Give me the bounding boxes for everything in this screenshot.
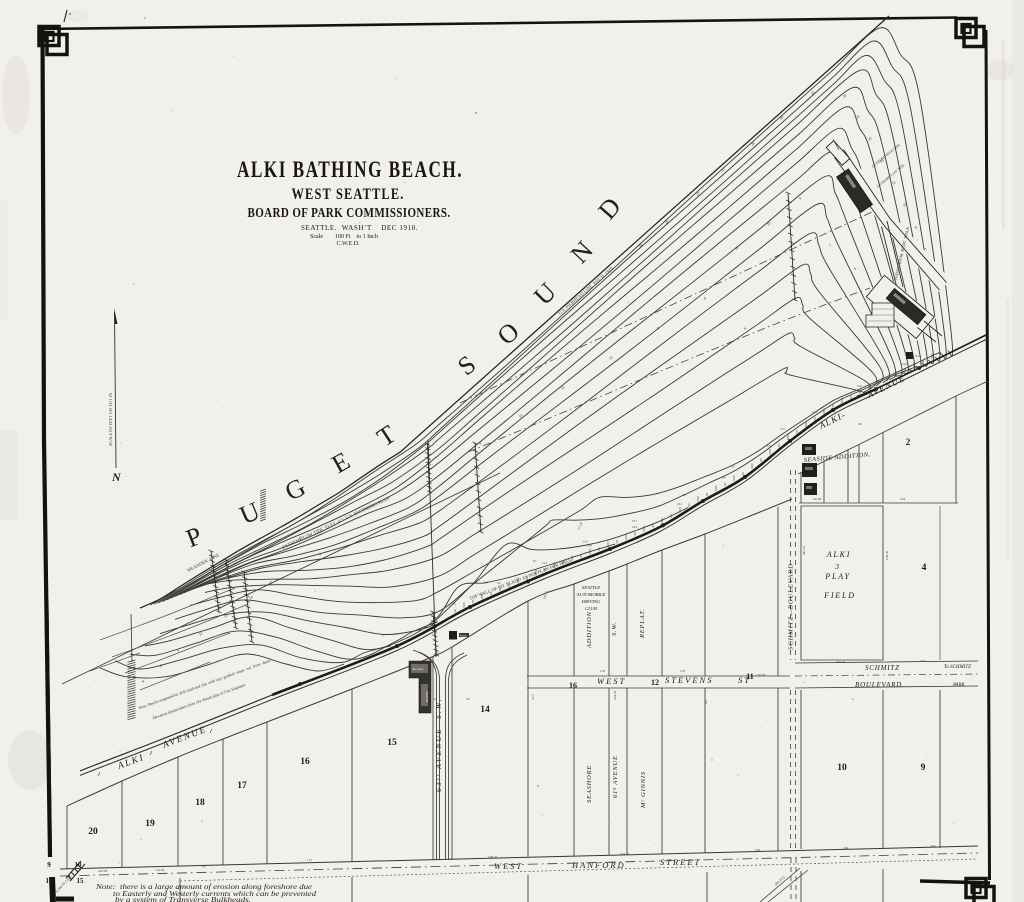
svg-text:BOULEVARD.: BOULEVARD.: [855, 681, 905, 689]
svg-text:324.35: 324.35: [620, 852, 630, 856]
svg-text:17: 17: [237, 781, 247, 791]
svg-text:S.W.: S.W.: [611, 621, 618, 636]
svg-text:4.0: 4.0: [452, 602, 456, 606]
svg-text:18.7: 18.7: [632, 519, 638, 523]
svg-text:9.6: 9.6: [767, 444, 771, 448]
svg-text:324.35: 324.35: [613, 690, 617, 700]
svg-text:ADDITION: ADDITION: [586, 611, 593, 649]
svg-text:57.5: 57.5: [531, 694, 535, 700]
svg-text:15: 15: [387, 738, 397, 748]
svg-text:222.64: 222.64: [98, 869, 108, 873]
svg-text:ALKI: ALKI: [826, 550, 852, 559]
svg-text:30: 30: [433, 697, 437, 701]
svg-text:Store: Store: [915, 354, 922, 358]
svg-text:24.6: 24.6: [902, 362, 908, 366]
svg-text:150.06: 150.06: [756, 673, 766, 677]
svg-text:19.0: 19.0: [587, 544, 593, 548]
svg-text:Pump: Pump: [460, 633, 468, 637]
svg-text:CM.41: CM.41: [885, 550, 889, 560]
svg-text:REPLAT.: REPLAT.: [639, 608, 646, 639]
svg-text:To SCHMITZ: To SCHMITZ: [944, 665, 971, 670]
svg-text:57: 57: [202, 865, 206, 869]
svg-text:14.3: 14.3: [542, 561, 548, 565]
svg-text:29.3: 29.3: [677, 502, 683, 506]
svg-text:63ʳᵗ AVENUE S.W.: 63ʳᵗ AVENUE S.W.: [434, 697, 443, 792]
svg-text:16: 16: [300, 757, 310, 767]
svg-text:8.1: 8.1: [533, 559, 537, 563]
svg-text:14.3: 14.3: [812, 410, 818, 414]
svg-text:13.1: 13.1: [682, 493, 688, 497]
svg-text:SCHMITZ: SCHMITZ: [865, 664, 900, 672]
svg-text:WEST: WEST: [494, 861, 523, 871]
svg-text:254: 254: [900, 497, 905, 501]
svg-text:Mᶜ GINNIS: Mᶜ GINNIS: [640, 771, 647, 809]
svg-text:24.6: 24.6: [632, 525, 638, 529]
svg-text:23.7: 23.7: [781, 427, 787, 431]
svg-text:ALKI BATHING BEACH.: ALKI BATHING BEACH.: [237, 157, 463, 183]
svg-text:CLUB: CLUB: [585, 606, 597, 611]
svg-text:23.4: 23.4: [583, 539, 589, 543]
svg-text:HANFORD: HANFORD: [571, 860, 626, 870]
svg-text:BOARD OF PARK COMMISSIONERS.: BOARD OF PARK COMMISSIONERS.: [248, 206, 451, 221]
svg-text:DRIVING: DRIVING: [581, 599, 601, 604]
svg-text:SEASHORE: SEASHORE: [586, 765, 593, 803]
svg-text:150.06: 150.06: [812, 497, 822, 501]
svg-text:9.6: 9.6: [497, 581, 501, 585]
svg-text:AUTOMOBILE: AUTOMOBILE: [576, 592, 606, 597]
svg-text:SEATTLE. WASH’T DEC 1910.: SEATTLE. WASH’T DEC 1910.: [301, 224, 418, 232]
svg-text:STREET: STREET: [660, 857, 701, 867]
svg-text:169.35: 169.35: [488, 855, 498, 859]
svg-text:ST: ST: [738, 675, 751, 685]
svg-text:171: 171: [307, 858, 312, 862]
svg-text:WEST: WEST: [597, 676, 626, 686]
svg-text:10: 10: [75, 861, 83, 869]
svg-text:254: 254: [930, 844, 935, 848]
svg-text:264: 264: [843, 846, 848, 850]
svg-text:150: 150: [600, 669, 605, 673]
svg-text:441.41: 441.41: [802, 545, 806, 555]
svg-text:15: 15: [77, 877, 85, 885]
svg-text:264.95: 264.95: [836, 660, 846, 664]
svg-text:WEST SEATTLE.: WEST SEATTLE.: [292, 186, 405, 203]
svg-text:12: 12: [651, 678, 659, 687]
svg-text:61ⁿ AVENUE: 61ⁿ AVENUE: [612, 755, 619, 798]
svg-text:40: 40: [858, 422, 862, 426]
svg-text:10: 10: [837, 763, 847, 773]
svg-text:McCabe: McCabe: [413, 667, 424, 671]
svg-text:PLAY: PLAY: [824, 572, 850, 581]
svg-text:14: 14: [480, 705, 490, 715]
svg-text:19.0: 19.0: [857, 384, 863, 388]
svg-text:333: 333: [755, 848, 760, 852]
svg-text:8.4: 8.4: [731, 464, 735, 468]
svg-text:FIELD: FIELD: [823, 591, 856, 600]
svg-text:C.W.E.D.: C.W.E.D.: [336, 241, 360, 247]
svg-text:18: 18: [195, 798, 205, 808]
svg-text:135: 135: [680, 669, 685, 673]
svg-text:16: 16: [46, 877, 54, 885]
svg-text:SCALE OF FEET 100 TO 1 IN: SCALE OF FEET 100 TO 1 IN: [108, 393, 113, 446]
svg-text:SCHMITZ—BOULEVARD: SCHMITZ—BOULEVARD: [788, 563, 795, 650]
svg-text:2: 2: [906, 437, 911, 447]
svg-text:9: 9: [47, 861, 51, 869]
svg-text:PARK: PARK: [952, 683, 966, 688]
svg-text:20: 20: [88, 827, 98, 837]
svg-text:19: 19: [145, 819, 155, 829]
svg-text:9: 9: [921, 763, 926, 773]
svg-text:137: 137: [920, 659, 925, 663]
svg-text:SEATTLE: SEATTLE: [582, 585, 600, 590]
svg-text:4.0: 4.0: [722, 475, 726, 479]
svg-text:30: 30: [466, 697, 470, 701]
svg-text:13.7: 13.7: [484, 581, 490, 585]
svg-text:Scale 100 Ft to 1 In: Scale 100 Ft to 1 Inch: [310, 234, 378, 240]
svg-text:3: 3: [834, 562, 841, 571]
svg-text:122.64: 122.64: [155, 868, 165, 872]
svg-text:16: 16: [569, 681, 577, 690]
svg-text:4: 4: [922, 563, 927, 573]
svg-text:by a system of Transverse Bulk: by a system of Transverse Bulkheads.: [115, 896, 251, 902]
svg-text:60: 60: [704, 700, 708, 704]
svg-text:N: N: [111, 470, 122, 484]
svg-text:BATHS: BATHS: [425, 691, 429, 702]
svg-text:STEVENS: STEVENS: [665, 675, 713, 685]
